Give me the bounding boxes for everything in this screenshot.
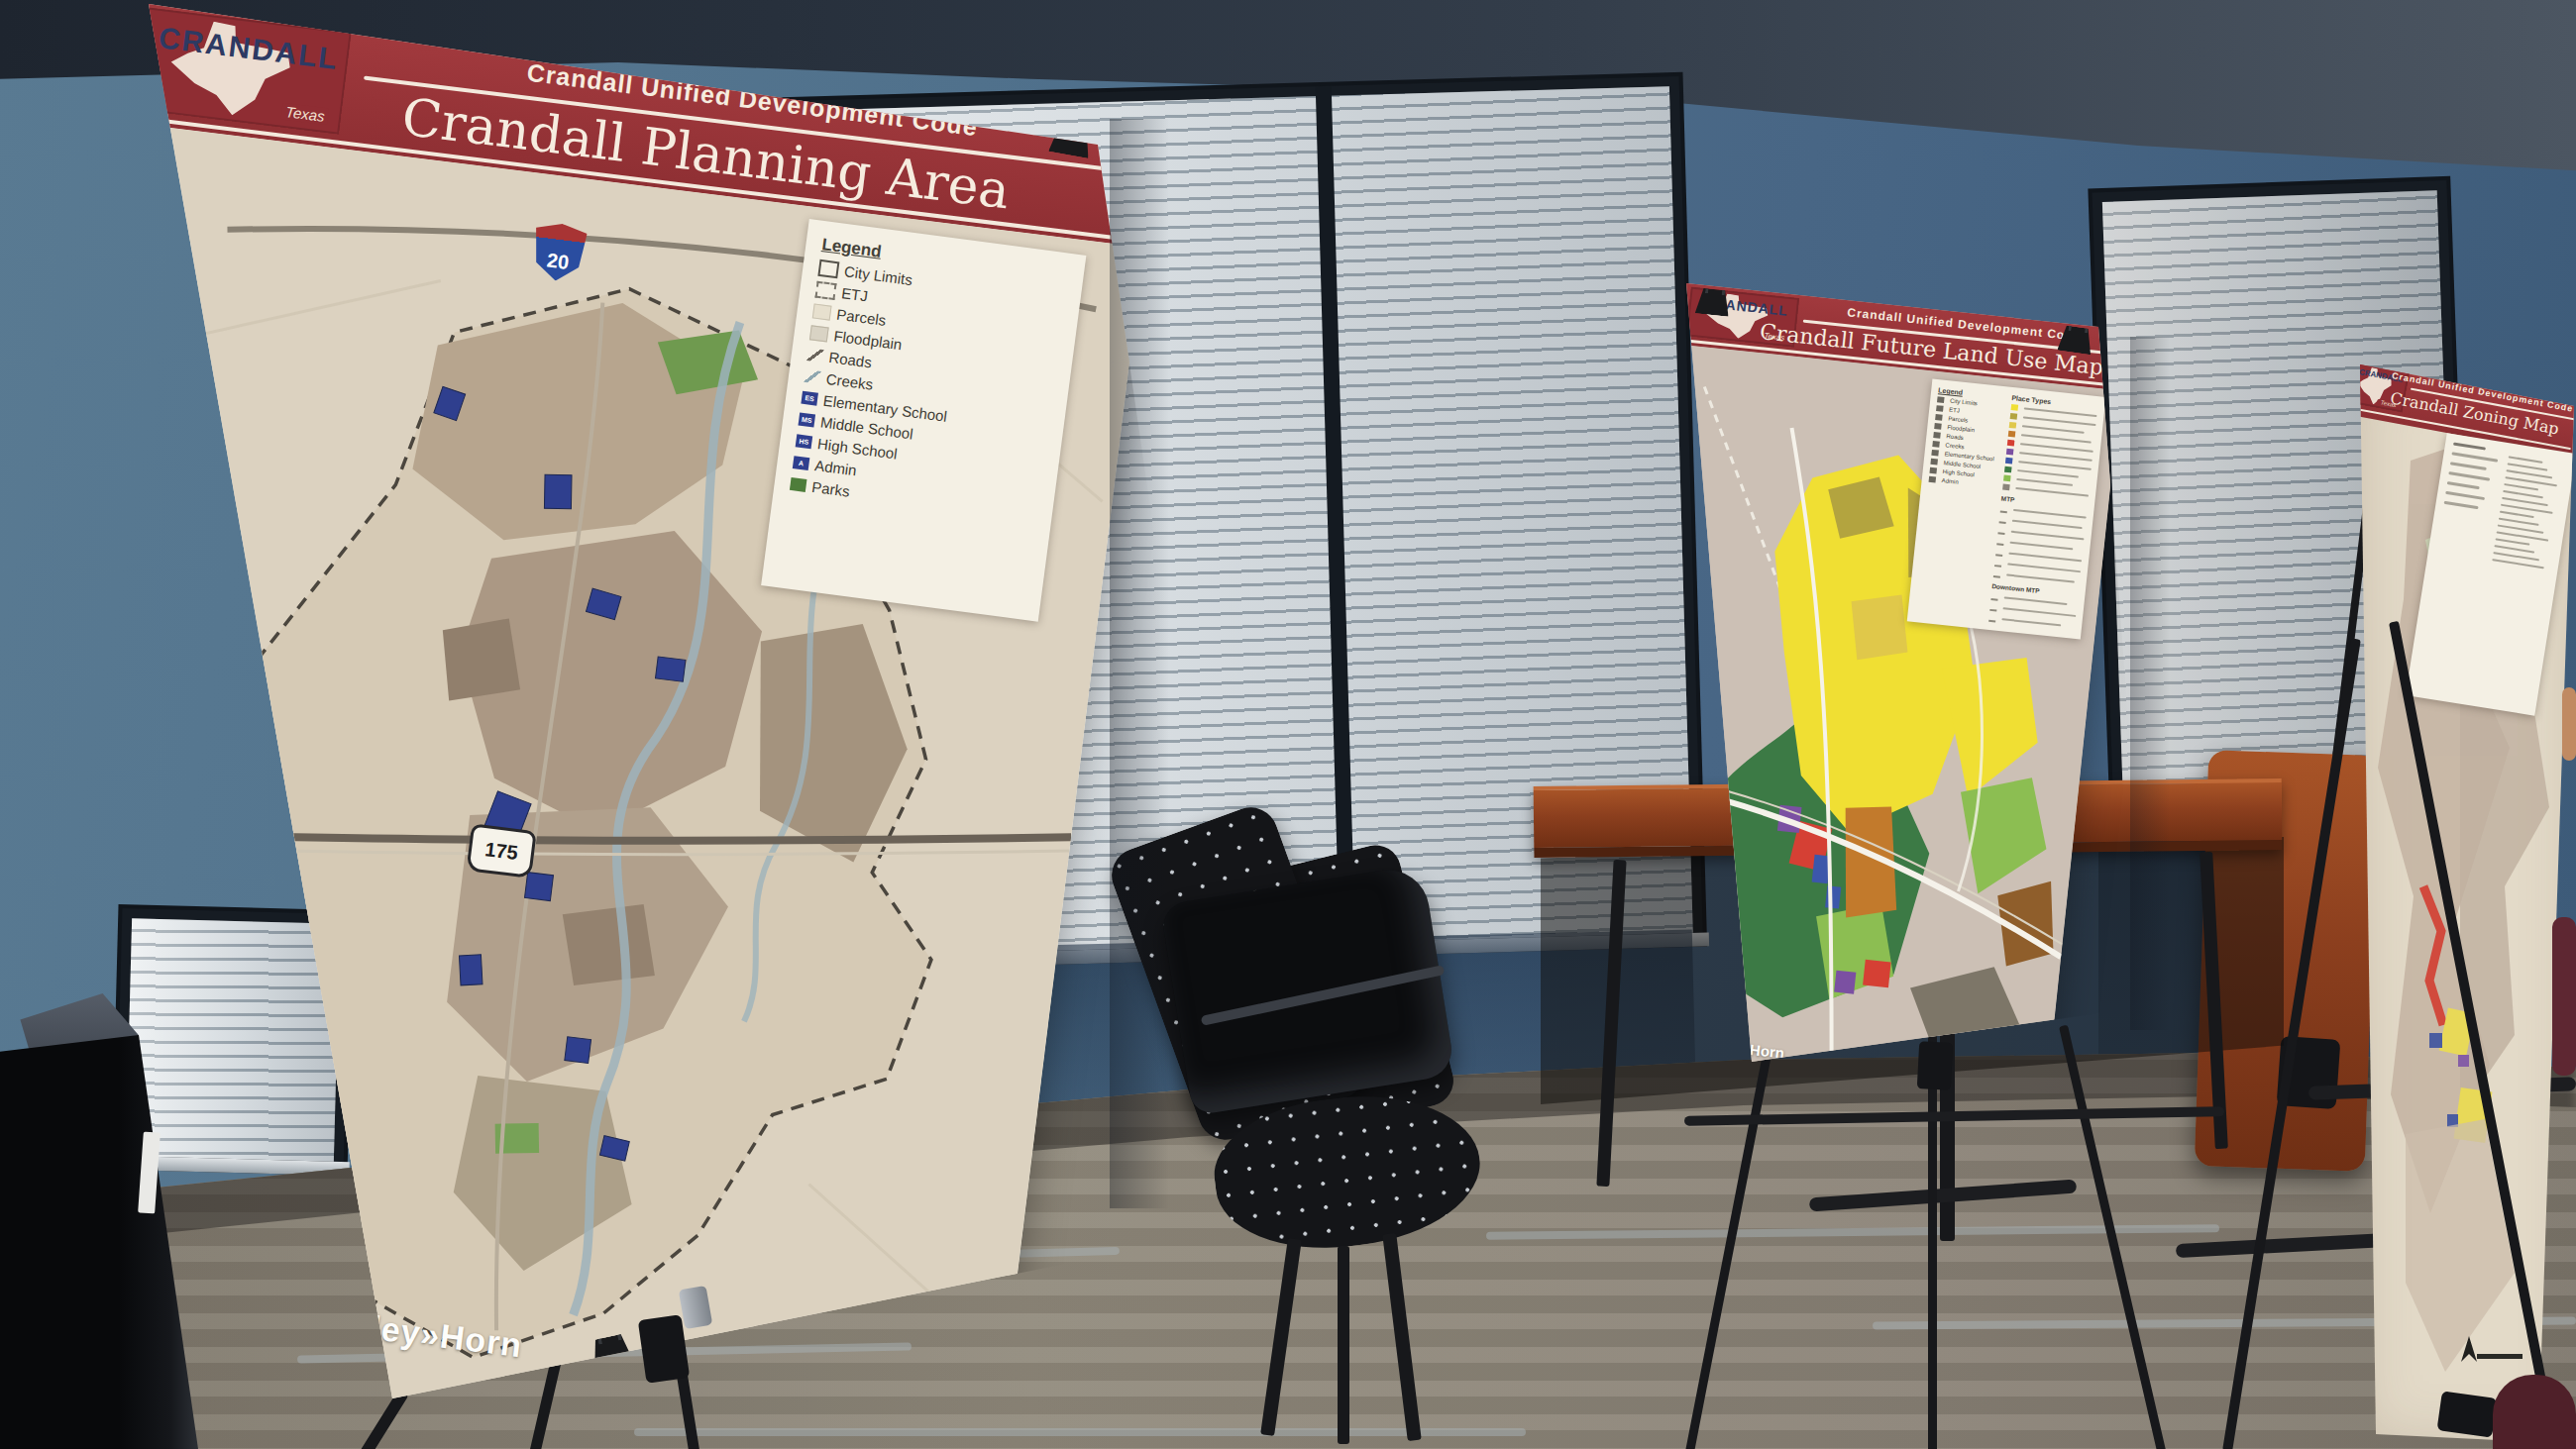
legend-swatch-icon [1932, 441, 1940, 448]
legend-line [2445, 491, 2485, 500]
legend-swatch-icon: MS [799, 413, 816, 428]
legend-swatch-icon [1996, 537, 2004, 546]
legend-swatch-icon [2007, 431, 2015, 438]
legend-swatch-icon [1936, 405, 1944, 412]
legend-label: Floodplain [833, 327, 904, 353]
legend-swatch-icon [1992, 569, 2000, 578]
legend-line [2444, 501, 2479, 509]
legend-label: Admin [813, 457, 857, 478]
legend-swatch-icon [812, 303, 832, 320]
legend-swatch-icon [1989, 603, 1997, 612]
legend-swatch-icon [2010, 404, 2018, 411]
poster-shadow [1110, 119, 1169, 1208]
legend-label: City Limits [843, 262, 913, 288]
legend-swatch-icon [1929, 467, 1937, 474]
legend-label: Floodplain [1947, 424, 1975, 433]
legend-swatch-icon [1998, 515, 2006, 524]
maroon-chair-edge [2552, 917, 2576, 1076]
us-highway-number: 175 [483, 838, 519, 865]
legend-swatch-icon [814, 281, 836, 300]
legend-swatch-icon [1933, 432, 1941, 439]
legend-swatch-icon [817, 259, 839, 278]
legend-swatch-icon [806, 348, 824, 362]
person-arm [2562, 687, 2576, 761]
legend-swatch-icon [2009, 413, 2017, 420]
legend-swatch-icon [790, 477, 807, 492]
legend-swatch-icon [1997, 526, 2005, 535]
legend-label: High School [1942, 468, 1975, 477]
legend-swatch-icon [2003, 475, 2011, 482]
legend-line [2016, 478, 2073, 486]
legend-swatch-icon: HS [796, 434, 813, 449]
legend-swatch-icon [1993, 559, 2001, 568]
poster-shadow [2130, 337, 2170, 1030]
planning-legend-card: Legend City LimitsETJParcelsFloodplainRo… [761, 219, 1086, 622]
legend-line [2451, 452, 2498, 462]
easel-clamp [1917, 1041, 1953, 1090]
easel-clamp [638, 1314, 690, 1384]
legend-swatch-icon: A [793, 456, 810, 470]
legend-label: City Limits [1950, 398, 1978, 407]
legend-line [2001, 618, 2061, 626]
legend-swatch-icon [1934, 423, 1942, 430]
legend-heading-line [2453, 442, 2486, 450]
legend-swatch-icon [1935, 414, 1943, 421]
legend-line [2500, 511, 2534, 519]
legend-label: Roads [828, 349, 873, 371]
legend-swatch-icon [2005, 449, 2013, 456]
legend-line [2011, 520, 2082, 529]
chair-leg [1338, 1246, 1349, 1444]
legend-line [2495, 538, 2529, 546]
legend-swatch-icon [2002, 484, 2010, 491]
carpet-streak [634, 1428, 1526, 1436]
legend-swatch-icon [809, 325, 829, 342]
legend-swatch-icon [1937, 396, 1945, 403]
legend-line [2447, 481, 2480, 489]
legend-swatch-icon [1988, 614, 1996, 623]
legend-label: Middle School [1943, 460, 1981, 469]
meeting-room-photo: CRANDALL Texas Crandall Unified Developm… [0, 0, 2576, 1449]
legend-swatch-icon: ES [801, 391, 818, 406]
legend-swatch-icon [1931, 450, 1939, 457]
legend-label: Creeks [825, 370, 874, 393]
legend-swatch-icon [2004, 466, 2012, 473]
us-175-shield-icon: 175 [466, 823, 536, 879]
legend-label: Admin [1941, 477, 1959, 485]
legend-swatch-icon [1995, 548, 2003, 557]
legend-label: Creeks [1945, 442, 1965, 450]
legend-label: ETJ [1949, 406, 1960, 413]
legend-line [2003, 596, 2067, 605]
legend-line [2448, 471, 2490, 481]
legend-label: Roads [1946, 433, 1964, 441]
legend-line [2508, 456, 2542, 464]
legend-swatch-icon [2006, 440, 2014, 447]
monitor-cart [0, 966, 248, 1449]
easel-clamp [2436, 1391, 2497, 1437]
legend-swatch-icon [1929, 476, 1937, 483]
legend-line [2450, 462, 2487, 470]
legend-swatch-icon [804, 369, 821, 384]
maroon-chair-bottom [2493, 1375, 2576, 1449]
legend-swatch-icon [1990, 592, 1998, 601]
legend-swatch-icon [2008, 422, 2016, 429]
legend-label: ETJ [840, 284, 869, 304]
legend-label: Parks [810, 478, 850, 500]
legend-line [2006, 573, 2075, 582]
legend-swatch-icon [1999, 504, 2007, 513]
interstate-number: 20 [546, 249, 571, 274]
monitor-body [0, 1035, 198, 1449]
legend-swatch-icon [2004, 458, 2012, 465]
legend-label: Parcels [835, 306, 887, 329]
easel-leg [1928, 1035, 1937, 1449]
legend-swatch-icon [1930, 459, 1938, 466]
legend-line [2009, 542, 2073, 551]
legend-label: Parcels [1948, 415, 1969, 423]
land-use-legend-card: Legend City LimitsETJParcelsFloodplainRo… [1907, 379, 2106, 640]
legend-line [2504, 483, 2538, 491]
